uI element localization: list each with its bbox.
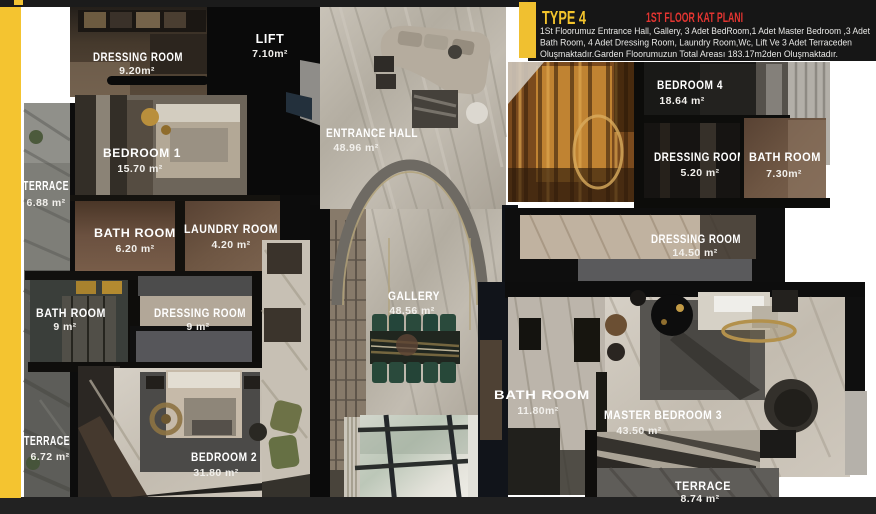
svg-text:TERRACE: TERRACE <box>23 179 69 193</box>
svg-text:DRESSING ROOM: DRESSING ROOM <box>93 50 183 64</box>
svg-text:7.10m²: 7.10m² <box>252 48 288 60</box>
svg-text:9 m²: 9 m² <box>186 321 209 333</box>
svg-text:BEDROOM 4: BEDROOM 4 <box>657 80 723 92</box>
svg-text:BATH ROOM: BATH ROOM <box>36 306 106 320</box>
svg-text:DRESSING ROOM: DRESSING ROOM <box>654 150 746 164</box>
svg-text:9.20m²: 9.20m² <box>119 65 155 77</box>
svg-text:6.88 m²: 6.88 m² <box>27 197 66 209</box>
svg-text:1ST FLOOR KAT PLANI: 1ST FLOOR KAT PLANI <box>646 9 743 25</box>
svg-text:6.20 m²: 6.20 m² <box>116 243 155 255</box>
svg-text:Bath Room, 4 Adet Dressing Roo: Bath Room, 4 Adet Dressing Room, Laundry… <box>540 38 852 48</box>
svg-text:6.72 m²: 6.72 m² <box>31 451 70 463</box>
svg-text:18.64 m²: 18.64 m² <box>659 95 704 107</box>
svg-text:5.20 m²: 5.20 m² <box>681 167 720 179</box>
svg-text:DRESSING ROOM: DRESSING ROOM <box>154 306 246 320</box>
svg-text:TERRACE: TERRACE <box>675 479 731 493</box>
svg-text:14.50 m²: 14.50 m² <box>672 247 717 259</box>
svg-text:15.70 m²: 15.70 m² <box>117 163 162 175</box>
svg-text:9 m²: 9 m² <box>53 321 76 333</box>
svg-text:DRESSING ROOM: DRESSING ROOM <box>651 232 741 246</box>
svg-text:BATH ROOM: BATH ROOM <box>94 226 176 240</box>
svg-text:MASTER BEDROOM 3: MASTER BEDROOM 3 <box>604 408 722 422</box>
svg-text:31.80 m²: 31.80 m² <box>193 467 238 479</box>
svg-text:BATH ROOM: BATH ROOM <box>749 150 821 164</box>
svg-text:Oluşmaktadır.Garden Floorumuzu: Oluşmaktadır.Garden Floorumuzun Total Ar… <box>540 49 838 59</box>
svg-text:48.96 m²: 48.96 m² <box>333 142 378 154</box>
svg-text:7.30m²: 7.30m² <box>766 168 802 180</box>
svg-text:TYPE 4: TYPE 4 <box>542 8 586 28</box>
svg-text:4.20 m²: 4.20 m² <box>212 239 251 251</box>
svg-text:43.50 m²: 43.50 m² <box>616 425 661 437</box>
svg-text:LIFT: LIFT <box>256 32 285 46</box>
svg-text:BEDROOM 2: BEDROOM 2 <box>191 450 257 464</box>
svg-text:1St Floorumuz Entrance Hall, G: 1St Floorumuz Entrance Hall, Gallery, 3 … <box>540 26 870 36</box>
svg-text:11.80m²: 11.80m² <box>517 405 558 417</box>
svg-text:LAUNDRY ROOM: LAUNDRY ROOM <box>184 224 278 236</box>
svg-text:TERRACE: TERRACE <box>24 434 70 448</box>
svg-text:ENTRANCE HALL: ENTRANCE HALL <box>326 126 418 140</box>
svg-text:BEDROOM 1: BEDROOM 1 <box>103 146 181 160</box>
svg-text:8.74 m²: 8.74 m² <box>681 493 720 505</box>
svg-text:GALLERY: GALLERY <box>388 289 440 303</box>
svg-text:BATH ROOM: BATH ROOM <box>494 388 590 402</box>
